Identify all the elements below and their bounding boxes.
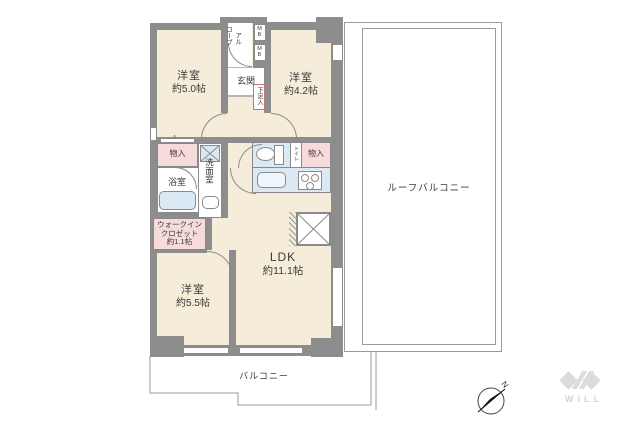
floor-plan-canvas: MB MB 下足入 ∧ ルーフバルコニー バルコニー 洋室 約5.0帖 xyxy=(0,0,640,427)
alcove-label-left: コーブ xyxy=(224,26,231,46)
wall-top-left xyxy=(150,23,228,30)
wall-bedroom2-top xyxy=(264,22,318,30)
entrance-label: 玄関 xyxy=(228,76,264,87)
bedroom1-size: 約5.0帖 xyxy=(157,84,221,97)
stove-burner-3 xyxy=(306,182,314,190)
bedroom2-name: 洋室 xyxy=(266,72,336,86)
bedroom2-size: 約4.2帖 xyxy=(266,86,336,99)
refrigerator-hatch-strip xyxy=(289,212,296,246)
ldk-name: LDK xyxy=(238,250,328,265)
wic-line3: 約1.1帖 xyxy=(152,238,207,247)
folding-door-marker: ∧ xyxy=(172,134,177,141)
toilet-tank xyxy=(274,145,284,165)
bedroom1-label: 洋室 約5.0帖 xyxy=(157,70,221,96)
balcony-outline xyxy=(140,350,390,420)
ldk-label: LDK 約11.1帖 xyxy=(238,250,328,278)
logo-text: WILL xyxy=(560,394,608,404)
window-left-wall xyxy=(150,128,157,140)
toilet-label: トイレ xyxy=(293,146,298,161)
bathroom-label: 浴室 xyxy=(157,177,197,188)
shoe-cabinet-label: 下足入 xyxy=(256,87,262,105)
storage-right-label: 物入 xyxy=(301,149,331,159)
ldk-size: 約11.1帖 xyxy=(238,265,328,278)
alcove-label-right: アル xyxy=(233,32,240,45)
bathtub xyxy=(159,191,196,210)
balcony-label: バルコニー xyxy=(232,371,296,382)
stove-burner-2 xyxy=(311,174,319,182)
wash-basin xyxy=(202,196,219,209)
meter-box-2-label: MB xyxy=(256,46,262,58)
kitchen-sink xyxy=(257,172,286,188)
refrigerator-x-icon xyxy=(296,212,331,246)
wall-washroom-right xyxy=(221,144,228,218)
storage-left-label: 物入 xyxy=(157,149,198,159)
roof-balcony-label: ルーフバルコニー xyxy=(383,183,475,195)
window-ldk-right xyxy=(332,268,343,326)
meter-box-1-label: MB xyxy=(256,26,262,38)
bedroom3-name: 洋室 xyxy=(156,284,230,298)
bedroom3-size: 約5.5帖 xyxy=(156,298,230,311)
bedroom3-label: 洋室 約5.5帖 xyxy=(156,284,230,310)
compass-icon xyxy=(474,383,514,419)
window-bedroom2-right xyxy=(332,45,343,60)
stove-burner-1 xyxy=(301,174,309,182)
washroom-label: 洗面室 xyxy=(205,158,214,184)
bedroom1-name: 洋室 xyxy=(157,70,221,84)
bedroom2-label: 洋室 約4.2帖 xyxy=(266,72,336,98)
walk-in-closet-label: ウォークイン クロゼット 約1.1帖 xyxy=(152,221,207,247)
